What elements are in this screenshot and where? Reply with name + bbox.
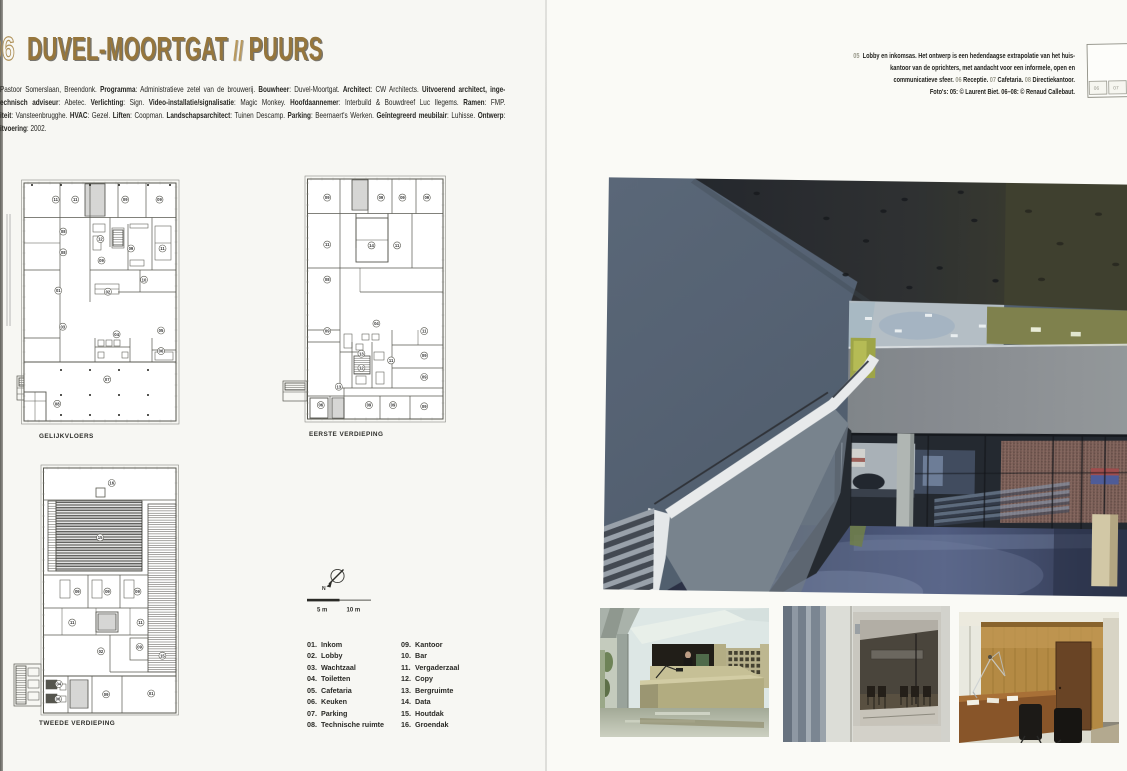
svg-text:09: 09 <box>157 197 162 202</box>
svg-text:13: 13 <box>336 384 341 389</box>
svg-text:N: N <box>322 586 326 592</box>
svg-text:11: 11 <box>395 243 400 248</box>
svg-text:11: 11 <box>325 242 330 247</box>
svg-text:01: 01 <box>149 691 154 696</box>
svg-text:01: 01 <box>56 288 61 293</box>
svg-text:11: 11 <box>138 620 143 625</box>
svg-text:09: 09 <box>135 589 140 594</box>
svg-text:08: 08 <box>55 401 60 406</box>
svg-text:07: 07 <box>1113 85 1119 91</box>
svg-text:14: 14 <box>369 243 374 248</box>
svg-text:02: 02 <box>106 289 111 294</box>
svg-text:11: 11 <box>160 246 165 251</box>
svg-text:08: 08 <box>61 250 66 255</box>
svg-text:12: 12 <box>359 366 364 371</box>
svg-text:09: 09 <box>424 195 429 200</box>
svg-text:12: 12 <box>98 237 103 242</box>
svg-text:05: 05 <box>159 328 164 333</box>
svg-text:08: 08 <box>325 277 330 282</box>
svg-text:09: 09 <box>325 329 330 334</box>
svg-text:15: 15 <box>160 653 165 658</box>
svg-text:10 m: 10 m <box>347 608 361 614</box>
svg-text:09: 09 <box>422 353 427 358</box>
svg-text:09: 09 <box>422 375 427 380</box>
svg-text:04: 04 <box>56 682 61 687</box>
svg-text:09: 09 <box>325 195 330 200</box>
svg-text:06: 06 <box>1094 86 1100 92</box>
svg-text:03: 03 <box>60 324 65 329</box>
svg-text:15: 15 <box>98 535 103 540</box>
svg-text:09: 09 <box>379 195 384 200</box>
svg-text:11: 11 <box>53 197 58 202</box>
svg-text:07: 07 <box>105 377 110 382</box>
svg-text:13: 13 <box>359 351 364 356</box>
svg-text:09: 09 <box>99 258 104 263</box>
svg-text:09: 09 <box>105 589 110 594</box>
svg-text:02: 02 <box>99 649 104 654</box>
svg-text:09: 09 <box>129 246 134 251</box>
svg-text:08: 08 <box>61 229 66 234</box>
svg-text:11: 11 <box>422 329 427 334</box>
svg-text:09: 09 <box>75 589 80 594</box>
svg-text:5 m: 5 m <box>317 608 327 614</box>
svg-text:09: 09 <box>137 645 142 650</box>
svg-text:06: 06 <box>56 697 61 702</box>
svg-text:11: 11 <box>389 358 394 363</box>
svg-text:06: 06 <box>318 403 323 408</box>
svg-text:10: 10 <box>142 277 147 282</box>
svg-text:09: 09 <box>104 692 109 697</box>
svg-text:09: 09 <box>391 403 396 408</box>
svg-text:09: 09 <box>367 403 372 408</box>
svg-text:11: 11 <box>70 620 75 625</box>
svg-text:11: 11 <box>73 197 78 202</box>
svg-text:09: 09 <box>123 197 128 202</box>
svg-text:04: 04 <box>374 321 379 326</box>
svg-text:06: 06 <box>159 349 164 354</box>
svg-text:04: 04 <box>114 332 119 337</box>
svg-text:16: 16 <box>109 481 114 486</box>
svg-text:09: 09 <box>422 404 427 409</box>
svg-text:09: 09 <box>400 195 405 200</box>
